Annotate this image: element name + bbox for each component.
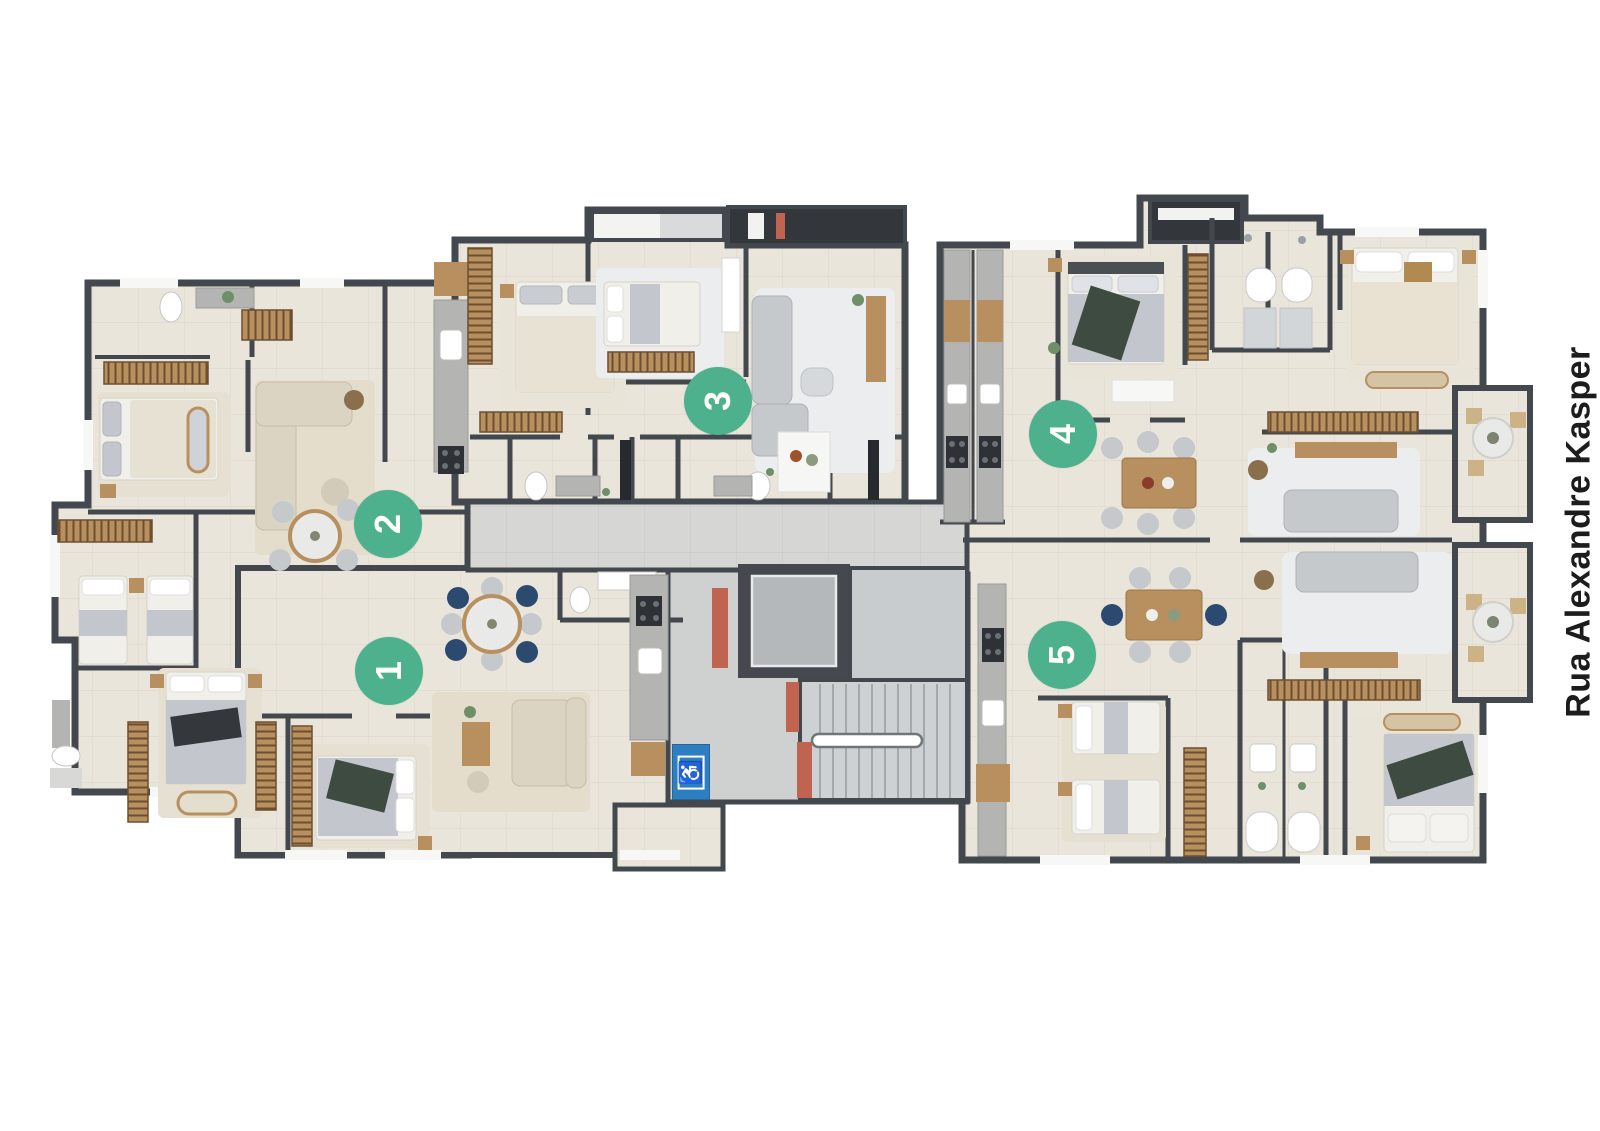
unit-badge-4[interactable]: 4 bbox=[1029, 400, 1097, 468]
living bbox=[432, 692, 590, 812]
tv-console bbox=[1300, 652, 1398, 668]
floor-plan bbox=[0, 0, 1600, 1131]
kitchen bbox=[434, 262, 468, 474]
ac-louver bbox=[242, 310, 292, 340]
nightstand bbox=[100, 484, 116, 498]
unit-badge-5[interactable]: 5 bbox=[1028, 621, 1096, 689]
fire-door-red-3 bbox=[797, 742, 812, 798]
wheelchair-icon: ♿ bbox=[678, 755, 705, 789]
sofa bbox=[1296, 552, 1418, 592]
media-wall bbox=[1268, 412, 1418, 432]
street-label: Rua Alexandre Kasper bbox=[1560, 346, 1599, 718]
unit-number: 1 bbox=[371, 661, 407, 681]
unit-number: 3 bbox=[700, 391, 736, 411]
wardrobe-2 bbox=[58, 520, 152, 542]
unit-number: 2 bbox=[370, 514, 406, 534]
stair-upper-landing bbox=[850, 568, 967, 682]
media-wall bbox=[1268, 680, 1420, 700]
bedroom-2 bbox=[150, 668, 262, 818]
wardrobe bbox=[104, 362, 208, 384]
service-box-topright bbox=[1150, 200, 1242, 242]
service-window-2 bbox=[1158, 208, 1234, 220]
side-table bbox=[344, 390, 364, 410]
bench bbox=[188, 408, 208, 472]
fire-door-red-1 bbox=[712, 588, 728, 668]
twin-bedroom bbox=[1058, 702, 1166, 842]
service-window bbox=[748, 213, 764, 239]
plant bbox=[222, 291, 234, 303]
wardrobe-4 bbox=[256, 722, 276, 810]
kitchen bbox=[630, 575, 668, 776]
sofa bbox=[1284, 490, 1398, 532]
unit-badge-2[interactable]: 2 bbox=[354, 490, 422, 558]
unit-badge-3[interactable]: 3 bbox=[684, 367, 752, 435]
sofa-seat bbox=[256, 382, 352, 426]
accessibility-sign: ♿ bbox=[672, 744, 710, 800]
toilet bbox=[160, 292, 182, 322]
balcony-shade bbox=[660, 214, 722, 238]
wardrobe bbox=[1188, 254, 1208, 360]
dining-table bbox=[1126, 590, 1202, 640]
wardrobe-3 bbox=[608, 352, 694, 372]
living bbox=[1254, 552, 1452, 668]
tv-console bbox=[1295, 442, 1397, 458]
dining-table bbox=[1122, 458, 1196, 508]
unit-badge-1[interactable]: 1 bbox=[355, 637, 423, 705]
wardrobe-2 bbox=[480, 412, 562, 432]
fire-door-red-2 bbox=[786, 682, 799, 732]
unit-number: 4 bbox=[1045, 424, 1081, 444]
wardrobe bbox=[292, 726, 312, 846]
unit-number: 5 bbox=[1044, 645, 1080, 665]
wardrobe bbox=[468, 248, 492, 364]
bedroom bbox=[302, 744, 432, 850]
master-bedroom bbox=[1340, 248, 1476, 388]
living bbox=[1248, 442, 1420, 536]
elevator-cab bbox=[752, 576, 836, 666]
floor-plan-canvas: 1 2 3 4 5 ♿ Rua Alexandre Kasper bbox=[0, 0, 1600, 1131]
corridor bbox=[468, 502, 967, 570]
wardrobe-3 bbox=[128, 722, 148, 822]
stair-handrail bbox=[812, 734, 922, 747]
kitchen bbox=[976, 584, 1010, 856]
service-red bbox=[776, 213, 785, 239]
master-bedroom bbox=[1352, 714, 1476, 852]
wardrobe bbox=[1184, 748, 1206, 856]
dining-set bbox=[441, 577, 542, 671]
